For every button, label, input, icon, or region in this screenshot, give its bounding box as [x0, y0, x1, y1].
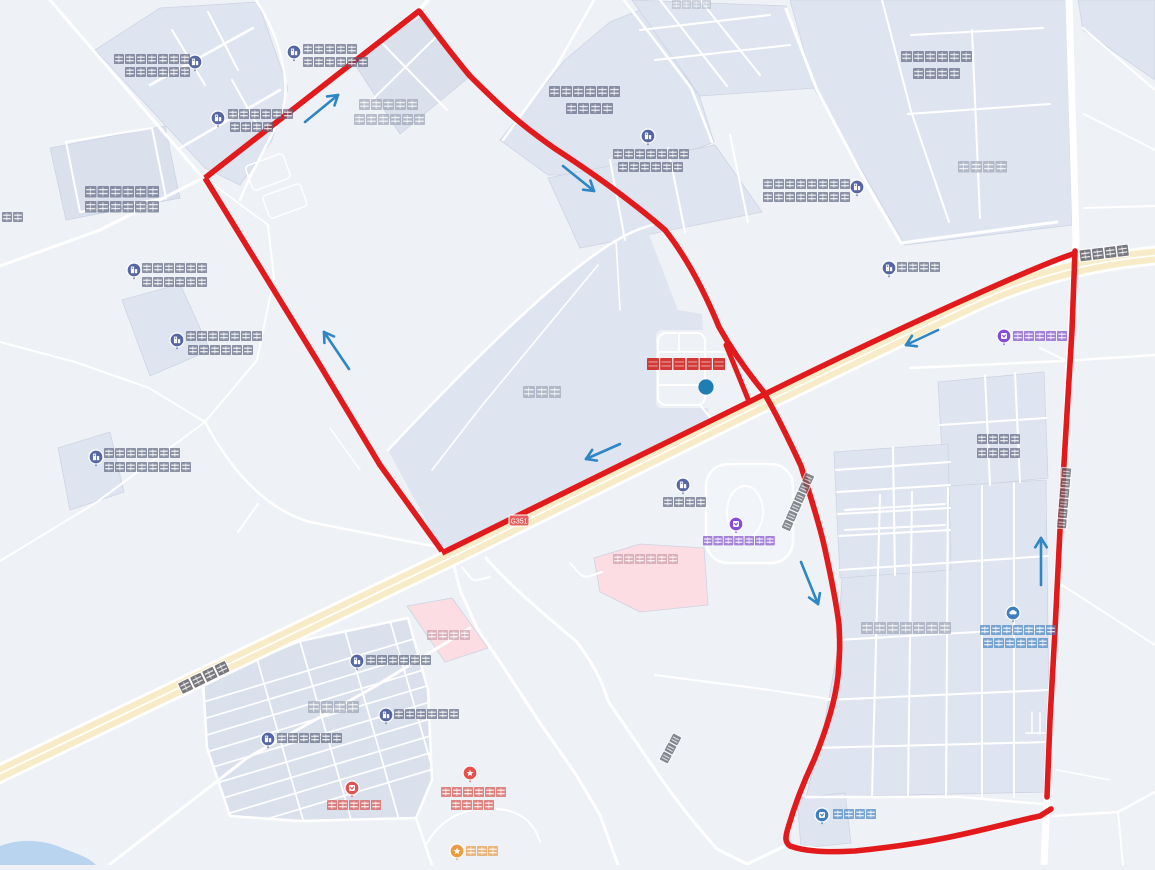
svg-text:G351: G351	[510, 519, 527, 526]
